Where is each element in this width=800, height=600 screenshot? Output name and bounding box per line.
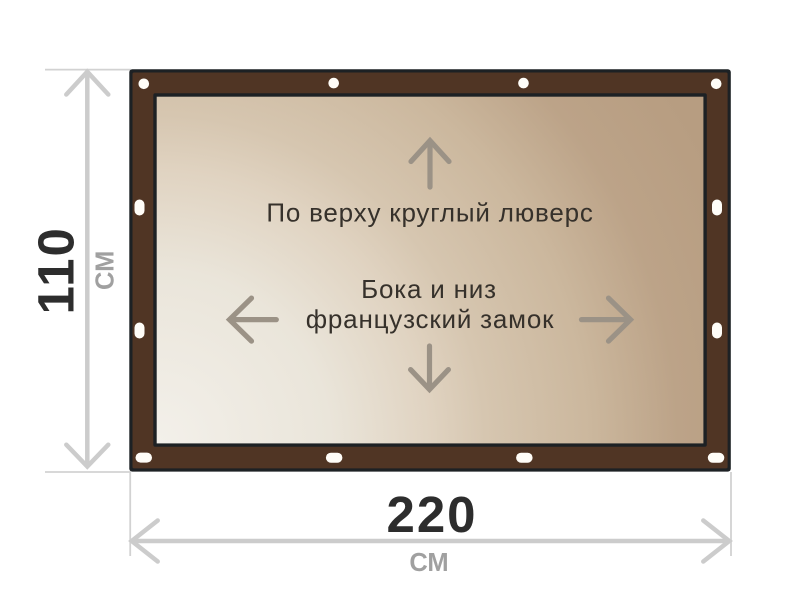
svg-text:Бока и низ: Бока и низ [361, 274, 497, 304]
svg-text:По верху круглый люверс: По верху круглый люверс [266, 197, 593, 227]
svg-text:220: 220 [386, 486, 477, 543]
svg-text:СМ: СМ [92, 251, 120, 290]
svg-text:110: 110 [28, 226, 85, 314]
svg-text:СМ: СМ [409, 549, 448, 577]
svg-text:французский замок: французский замок [306, 304, 555, 334]
